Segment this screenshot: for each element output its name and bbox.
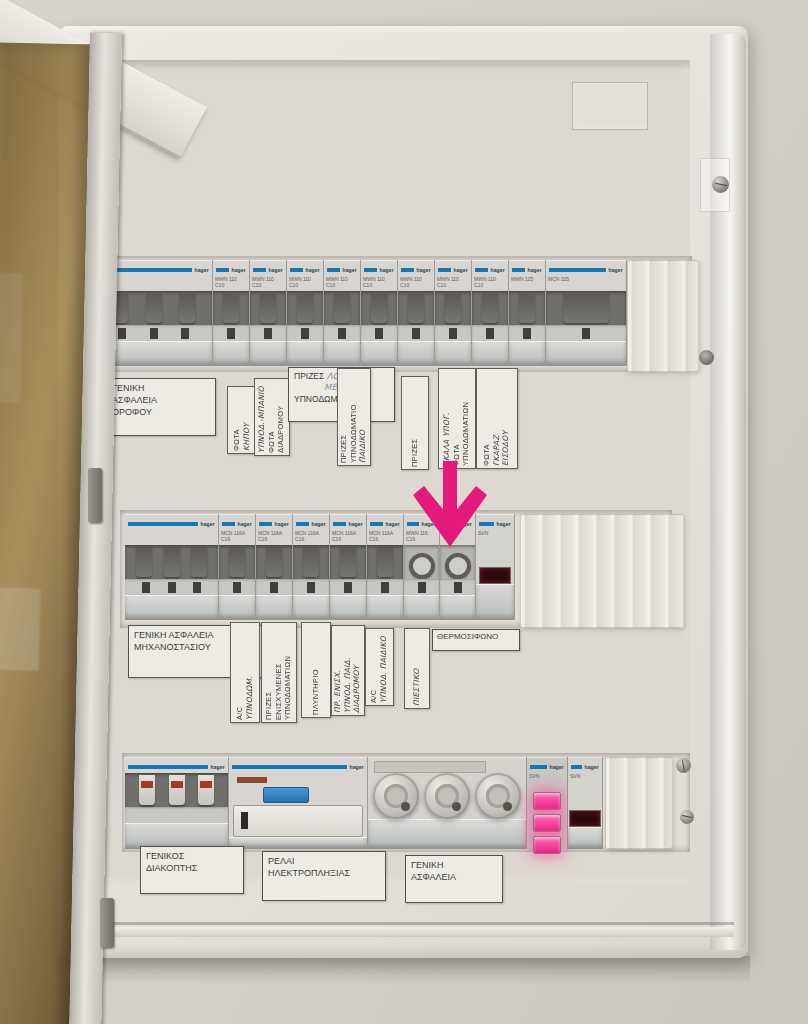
device-single: hagerMWN 110C10 <box>213 260 250 366</box>
hager-blue-bar-icon <box>222 522 235 526</box>
terminal-cover <box>435 341 471 366</box>
device-rating: C10 <box>326 283 358 289</box>
label-text: ΥΠΝΟΔΩΜΑΤΙΩΝ <box>284 625 293 720</box>
indicator-lamp-pink <box>533 792 561 810</box>
toggle-zone <box>435 291 471 325</box>
brand-stripe: hager <box>287 260 323 276</box>
state-band <box>293 579 329 595</box>
hager-blue-bar-icon <box>128 522 198 526</box>
device-single: hagerMCN 116AC16 <box>256 514 293 620</box>
device-single: hagerMCN 116AC16 <box>330 514 367 620</box>
label-text: ΠΡΙΖΕΣ <box>411 379 420 467</box>
glass-reflection <box>0 273 23 404</box>
fuse-indicator-dot <box>503 802 512 811</box>
label-text-handwritten: ΔΙΑΔΡΟΜΟΥ <box>353 628 362 713</box>
breaker-toggle[interactable] <box>445 293 461 323</box>
circuit-label-reinforced-kids-hall: ΠΡ. ΕΝΙΣΧ. ΥΠΝΟΔ. ΠΑΙΔ. ΔΙΑΔΡΟΜΟΥ <box>331 625 365 716</box>
label-text: ΔΙΑΔΡΟΜΟΥ <box>277 381 286 453</box>
hager-logo: hager <box>231 267 246 273</box>
hager-blue-bar-icon <box>401 268 414 272</box>
breaker-toggle[interactable] <box>229 547 245 577</box>
device-single: hagerMCN 116AC16 <box>219 514 256 620</box>
toggle-zone <box>398 291 434 325</box>
breaker-row-top: hagerhagerMWN 110C10hagerMWN 110C10hager… <box>95 260 699 366</box>
hager-logo: hager <box>194 267 209 273</box>
indicator-lamp-pink <box>533 836 561 854</box>
device-single: hagerMWN 110C10 <box>287 260 324 366</box>
device-switch3: hager <box>125 757 229 849</box>
brand-stripe: hager <box>293 514 329 530</box>
breaker-toggle[interactable] <box>408 293 424 323</box>
terminal-cover <box>440 595 475 620</box>
terminal-cover <box>368 819 526 849</box>
state-window <box>454 582 462 593</box>
breaker-toggle[interactable] <box>164 547 180 577</box>
label-text-handwritten: ΠΙΕΣΤΙΚΟ <box>413 631 422 706</box>
state-window <box>233 582 241 593</box>
terminal-cover <box>256 595 292 620</box>
device-rating: C10 <box>400 283 432 289</box>
toggle-zone <box>219 545 255 579</box>
hager-blue-bar-icon <box>290 268 303 272</box>
device-main: hager <box>125 514 219 620</box>
device-rating: C10 <box>289 283 321 289</box>
device-single: hagerMWN 110C10 <box>361 260 398 366</box>
state-window <box>486 328 494 339</box>
state-band <box>435 325 471 341</box>
terminal-cover <box>361 341 397 366</box>
breaker-toggle[interactable] <box>519 293 535 323</box>
hager-blue-bar-icon <box>530 765 547 769</box>
door-hinge <box>88 468 102 523</box>
device-pilotdark: hagerSVN <box>568 757 603 849</box>
state-window <box>375 328 383 339</box>
device-filler <box>627 260 699 372</box>
toggle-zone <box>125 773 228 807</box>
brand-stripe: hager <box>213 260 249 276</box>
state-band <box>125 807 228 823</box>
fuse-carriers <box>368 773 526 819</box>
state-window <box>142 582 150 593</box>
panel-door-open[interactable] <box>0 0 147 1024</box>
terminal-cover <box>250 341 286 366</box>
hager-logo: hager <box>416 267 431 273</box>
screw-icon <box>676 758 691 773</box>
screw-icon <box>680 810 694 824</box>
breaker-toggle[interactable] <box>371 293 387 323</box>
label-text: ΡΕΛΑΙ <box>268 855 380 867</box>
label-text: ΠΛΥΝΤΗΡΙΟ <box>312 625 321 715</box>
rcd-rocker-switch[interactable] <box>233 805 363 837</box>
state-band <box>324 325 360 341</box>
device-code: MWN 110C10 <box>213 276 249 291</box>
state-window <box>582 328 590 339</box>
hager-logo: hager <box>268 267 283 273</box>
hager-blue-bar-icon <box>232 765 347 769</box>
device-pilot3: hagerSVN <box>527 757 568 849</box>
device-code: MWN 110C10 <box>435 276 471 291</box>
toggle-zone <box>250 291 286 325</box>
hager-logo: hager <box>453 267 468 273</box>
hager-logo: hager <box>349 764 364 770</box>
state-window <box>168 582 176 593</box>
terminal-cover <box>367 595 403 620</box>
toggle-zone <box>440 545 475 579</box>
state-window <box>227 328 235 339</box>
state-band <box>213 325 249 341</box>
label-text: A/C <box>236 625 245 720</box>
terminal-cover <box>293 595 329 620</box>
label-text: ΠΡΙΖΕΣ <box>340 371 349 463</box>
circuit-label-bedroom-lights: ΣΚΑΛΑ ΥΠΟΓ. ΦΩΤΑ ΥΠΝΟΔΩΜΑΤΙΩΝ <box>438 368 476 469</box>
toggle-zone <box>256 545 292 579</box>
toggle-zone <box>404 545 439 579</box>
label-text-handwritten: ΥΠΝΟΔ.-ΜΠΑΝΙΟ <box>258 381 267 453</box>
breaker-toggle[interactable] <box>266 547 282 577</box>
hager-blue-bar-icon <box>296 522 309 526</box>
panel-sticker <box>572 82 648 130</box>
device-code: MWN 110C10 <box>398 276 434 291</box>
device-single: hagerMWN 125 <box>509 260 546 366</box>
label-text-handwritten: ΥΠΝΟΔΩΜ. <box>246 625 255 720</box>
device-code: MCN 116AC16 <box>330 530 366 545</box>
label-text: ΓΕΝΙΚΗ <box>411 859 497 871</box>
state-band <box>398 325 434 341</box>
state-band <box>256 579 292 595</box>
label-text: ΦΩΤΑ <box>233 389 242 451</box>
state-window <box>264 328 272 339</box>
breaker-toggle[interactable] <box>303 547 319 577</box>
device-fillerwide <box>520 514 684 628</box>
state-window <box>344 582 352 593</box>
hager-blue-bar-icon <box>475 268 488 272</box>
rotary-fuse-cap[interactable] <box>424 773 470 819</box>
label-text: ΦΩΤΑ <box>483 371 492 466</box>
state-window <box>381 582 389 593</box>
hager-blue-bar-icon <box>438 268 451 272</box>
toggle-zone <box>361 291 397 325</box>
hager-logo: hager <box>342 267 357 273</box>
brand-stripe: hager <box>398 260 434 276</box>
state-band <box>472 325 508 341</box>
brand-stripe: hager <box>229 757 367 773</box>
hager-logo: hager <box>348 521 363 527</box>
toggle-zone <box>324 291 360 325</box>
state-band <box>219 579 255 595</box>
brand-stripe: hager <box>125 757 228 773</box>
brand-stripe: hager <box>324 260 360 276</box>
label-text-handwritten: ΕΙΣΟΔΟΥ <box>502 371 511 466</box>
terminal-cover <box>213 341 249 366</box>
brand-stripe: hager <box>527 757 567 773</box>
device-fuses <box>368 757 527 849</box>
device-model: MWN 125 <box>511 277 543 283</box>
screw-icon <box>712 176 729 193</box>
state-band <box>125 579 218 595</box>
state-window <box>449 328 457 339</box>
state-band <box>287 325 323 341</box>
brand-stripe: hager <box>472 260 508 276</box>
rcd-test-button[interactable] <box>263 787 309 803</box>
door-hinge <box>100 898 114 948</box>
hager-logo: hager <box>549 764 564 770</box>
main-switch-toggle[interactable] <box>169 775 185 805</box>
hager-blue-bar-icon <box>253 268 266 272</box>
breaker-toggle[interactable] <box>191 547 207 577</box>
toggle-zone <box>546 291 626 325</box>
device-code: MCN 116AC16 <box>219 530 255 545</box>
device-model: SVN <box>570 774 600 780</box>
screw-hole <box>699 350 714 365</box>
rocker-state-indicator <box>241 812 248 829</box>
terminal-cover <box>398 341 434 366</box>
device-single: hagerMWN 110C10 <box>398 260 435 366</box>
state-window <box>181 328 189 339</box>
circuit-label-ac-kids-bedroom: A/C ΥΠΝΟΔ. ΠΑΙΔΙΚΟ <box>365 628 394 706</box>
label-text: ΥΠΝΟΔΩΜΑΤΙΩΝ <box>462 371 471 466</box>
circuit-label-main-switch: ΓΕΝΙΚΟΣ ΔΙΑΚΟΠΤΗΣ <box>140 846 244 894</box>
brand-stripe: hager <box>219 514 255 530</box>
state-band <box>250 325 286 341</box>
state-window <box>523 328 531 339</box>
device-code <box>125 530 218 545</box>
label-text: ΑΣΦΑΛΕΙΑ <box>411 871 497 883</box>
label-text: ΗΛΕΚΤΡΟΠΛΗΞΙΑΣ <box>268 867 380 879</box>
hager-blue-bar-icon <box>327 268 340 272</box>
terminal-cover <box>509 341 545 366</box>
device-rcd: hager <box>229 757 368 849</box>
device-double: hagerMCN 325 <box>546 260 627 366</box>
brand-stripe: hager <box>125 514 218 530</box>
state-band <box>330 579 366 595</box>
brand-stripe: hager <box>568 757 602 773</box>
fuse-indicator-dot <box>452 802 461 811</box>
device-code: MCN 116AC16 <box>256 530 292 545</box>
label-text: ΠΡΙΖΕΣ <box>265 625 274 720</box>
indicator-window-red <box>479 567 511 584</box>
state-window <box>338 328 346 339</box>
circuit-label-garden-lights: ΦΩΤΑ ΚΗΠΟΥ <box>227 386 257 454</box>
device-rating: C16 <box>295 537 327 543</box>
terminal-cover <box>229 837 367 849</box>
round-toggle[interactable] <box>445 553 471 579</box>
panel-drop-shadow <box>56 956 750 984</box>
device-rating: C16 <box>369 537 401 543</box>
brand-stripe: hager <box>250 260 286 276</box>
circuit-label-water-heater: ΘΕΡΜΟΣΙΦΩΝΟ <box>432 629 520 651</box>
toggle-red-mark <box>200 781 212 788</box>
state-window <box>150 328 158 339</box>
state-band <box>404 579 439 595</box>
breaker-toggle[interactable] <box>260 293 276 323</box>
hager-logo: hager <box>305 267 320 273</box>
toggle-zone <box>293 545 329 579</box>
device-model: MCN 325 <box>548 277 624 283</box>
brand-stripe: hager <box>361 260 397 276</box>
round-toggle[interactable] <box>409 553 435 579</box>
circuit-label-sockets: ΠΡΙΖΕΣ <box>401 376 429 470</box>
label-text-handwritten: ΥΠΝΟΔ. ΠΑΙΔΙΚΟ <box>380 631 389 703</box>
circuit-label-ac-bedroom: A/C ΥΠΝΟΔΩΜ. <box>230 622 260 723</box>
phase-indicator-lamps <box>527 788 567 854</box>
label-text: ΘΕΡΜΟΣΙΦΩΝΟ <box>437 632 515 643</box>
state-window <box>412 328 420 339</box>
fuse-unit-bar <box>374 761 486 773</box>
state-window <box>307 582 315 593</box>
breaker-toggle[interactable] <box>334 293 350 323</box>
circuit-label-kids-bedroom-sockets: ΠΡΙΖΕΣ ΥΠΝΟΔΩΜΑΤΙΟ ΠΑΙΔΙΚΟ <box>337 368 371 466</box>
breaker-toggle[interactable] <box>179 293 195 323</box>
glass-reflection <box>0 588 40 671</box>
breaker-toggle[interactable] <box>563 293 609 323</box>
circuit-label-pressure-pump: ΠΙΕΣΤΙΚΟ <box>404 628 430 709</box>
device-code: MWN 110C10 <box>324 276 360 291</box>
hager-logo: hager <box>237 521 252 527</box>
main-switch-toggle[interactable] <box>198 775 214 805</box>
label-text: ΠΡΙΖΕΣ <box>294 371 324 381</box>
device-code: MWN 110C10 <box>250 276 286 291</box>
device-rating: C16 <box>258 537 290 543</box>
main-switch-toggle[interactable] <box>139 775 155 805</box>
device-code: MCN 116AC16 <box>293 530 329 545</box>
panel-bottom-seam <box>70 922 734 925</box>
hager-blue-bar-icon <box>259 522 272 526</box>
device-rating: C16 <box>332 537 364 543</box>
rcd-top <box>229 773 367 803</box>
device-rating: C10 <box>363 283 395 289</box>
device-rating: C16 <box>221 537 253 543</box>
device-single: hagerMWN 110C10 <box>250 260 287 366</box>
breaker-toggle[interactable] <box>297 293 313 323</box>
hager-blue-bar-icon <box>571 765 582 769</box>
hager-logo: hager <box>274 521 289 527</box>
breaker-toggle[interactable] <box>482 293 498 323</box>
state-window <box>270 582 278 593</box>
device-rating: C10 <box>252 283 284 289</box>
circuit-label-main-fuse: ΓΕΝΙΚΗ ΑΣΦΑΛΕΙΑ <box>405 855 503 903</box>
circuit-label-washing-machine: ΠΛΥΝΤΗΡΙΟ <box>301 622 331 718</box>
breaker-toggle[interactable] <box>146 293 162 323</box>
terminal-cover <box>219 595 255 620</box>
label-text: ΔΙΑΚΟΠΤΗΣ <box>146 862 238 874</box>
device-code: SVN <box>527 773 567 788</box>
label-text-handwritten: ΣΚΑΛΑ ΥΠΟΓ. <box>443 371 452 466</box>
toggle-zone <box>509 291 545 325</box>
toggle-zone <box>287 291 323 325</box>
terminal-cover <box>330 595 366 620</box>
state-band <box>361 325 397 341</box>
hager-logo: hager <box>311 521 326 527</box>
breaker-toggle[interactable] <box>377 547 393 577</box>
hager-logo: hager <box>379 267 394 273</box>
hager-logo: hager <box>527 267 542 273</box>
device-code: MCN 325 <box>546 276 626 291</box>
hager-logo: hager <box>490 267 505 273</box>
toggle-zone <box>330 545 366 579</box>
hager-blue-bar-icon <box>512 268 525 272</box>
hager-blue-bar-icon <box>364 268 377 272</box>
label-text-handwritten: ΠΑΙΔΙΚΟ <box>359 371 368 463</box>
device-single: hagerMWN 110C10 <box>472 260 509 366</box>
device-single: hagerMCN 116AC16 <box>293 514 330 620</box>
terminal-cover <box>324 341 360 366</box>
device-model: SVN <box>529 774 565 780</box>
rotary-fuse-cap[interactable] <box>475 773 521 819</box>
toggle-red-mark <box>171 781 183 788</box>
terminal-cover <box>568 827 602 849</box>
label-text-handwritten: ΠΡ. ΕΝΙΣΧ. <box>334 628 343 713</box>
device-single: hagerMWN 110C10 <box>324 260 361 366</box>
breaker-row-bottom: hagerhagerhagerSVNhagerSVN <box>125 757 673 849</box>
hager-logo: hager <box>210 764 225 770</box>
state-window <box>301 328 309 339</box>
hager-logo: hager <box>584 764 599 770</box>
circuit-label-hall-lights: ΥΠΝΟΔ.-ΜΠΑΝΙΟ ΦΩΤΑ ΔΙΑΔΡΟΜΟΥ <box>254 378 290 456</box>
terminal-cover <box>472 341 508 366</box>
state-band <box>509 325 545 341</box>
state-band <box>367 579 403 595</box>
state-band <box>546 325 626 341</box>
device-code: MWN 110C10 <box>361 276 397 291</box>
breaker-toggle[interactable] <box>136 547 152 577</box>
hager-logo: hager <box>200 521 215 527</box>
label-text: ΓΕΝΙΚΟΣ <box>146 850 238 862</box>
toggle-red-mark <box>141 781 153 788</box>
indicator-window-red <box>569 810 601 827</box>
label-text-handwritten: ΚΗΠΟΥ <box>243 389 252 451</box>
hager-blue-bar-icon <box>370 522 383 526</box>
hager-blue-bar-icon <box>216 268 229 272</box>
panel-bottom-lip <box>70 927 734 937</box>
device-code: MWN 110C10 <box>472 276 508 291</box>
fuse-indicator-dot <box>401 802 410 811</box>
toggle-zone <box>125 545 218 579</box>
hager-blue-bar-icon <box>333 522 346 526</box>
device-rating: C10 <box>474 283 506 289</box>
brand-stripe: hager <box>330 514 366 530</box>
device-code: MWN 125 <box>509 276 545 291</box>
breaker-toggle[interactable] <box>223 293 239 323</box>
state-window <box>418 582 426 593</box>
brand-stripe: hager <box>435 260 471 276</box>
terminal-cover <box>287 341 323 366</box>
down-arrow-annotation-icon <box>398 458 502 550</box>
device-filler <box>605 757 673 849</box>
terminal-cover <box>404 595 439 620</box>
brand-stripe: hager <box>256 514 292 530</box>
hager-logo: hager <box>608 267 623 273</box>
device-code: SVN <box>568 773 602 788</box>
device-code: MWN 110C10 <box>287 276 323 291</box>
rcd-test-label <box>237 777 267 783</box>
circuit-label-garage-entrance-lights: ΦΩΤΑ ΓΚΑΡΑΖ ΕΙΣΟΔΟΥ <box>476 368 518 469</box>
state-window <box>193 582 201 593</box>
breaker-toggle[interactable] <box>340 547 356 577</box>
device-rating: C10 <box>437 283 469 289</box>
label-text: A/C <box>370 631 379 703</box>
toggle-zone <box>472 291 508 325</box>
state-band <box>440 579 475 595</box>
rotary-fuse-cap[interactable] <box>373 773 419 819</box>
terminal-cover <box>125 595 218 620</box>
toggle-zone <box>367 545 403 579</box>
toggle-zone <box>213 291 249 325</box>
circuit-label-reinforced-sockets: ΠΡΙΖΕΣ ΕΝΙΣΧΥΜΕΝΕΣ ΥΠΝΟΔΩΜΑΤΙΩΝ <box>261 622 297 723</box>
device-rating: C10 <box>215 283 247 289</box>
hager-blue-bar-icon <box>549 268 606 272</box>
brand-stripe: hager <box>546 260 626 276</box>
brand-stripe: hager <box>509 260 545 276</box>
